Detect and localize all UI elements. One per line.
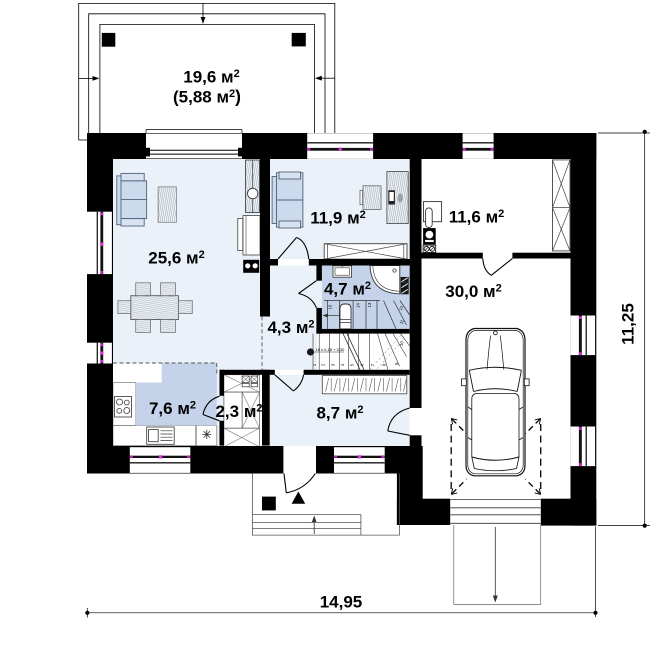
svg-text:11,25: 11,25 [619, 303, 638, 345]
svg-text:30,0 м2: 30,0 м2 [445, 282, 502, 301]
svg-text:16: 16 [328, 304, 333, 309]
svg-text:11,6 м2: 11,6 м2 [449, 208, 505, 227]
svg-text:19,6 м2: 19,6 м2 [183, 68, 240, 87]
svg-text:2,3 м2: 2,3 м2 [215, 402, 262, 421]
svg-text:14,95: 14,95 [320, 593, 363, 612]
svg-text:7,6 м2: 7,6 м2 [149, 399, 196, 418]
svg-text:4,7 м2: 4,7 м2 [324, 280, 371, 299]
svg-text:25,6 м2: 25,6 м2 [148, 249, 205, 268]
svg-text:16 x 0,18 + 3,30: 16 x 0,18 + 3,30 [316, 347, 346, 352]
svg-text:8,7 м2: 8,7 м2 [316, 404, 363, 423]
svg-text:11,9 м2: 11,9 м2 [310, 209, 366, 228]
svg-text:4,3 м2: 4,3 м2 [267, 318, 314, 337]
svg-text:13: 13 [367, 302, 372, 307]
svg-text:14: 14 [356, 303, 361, 308]
